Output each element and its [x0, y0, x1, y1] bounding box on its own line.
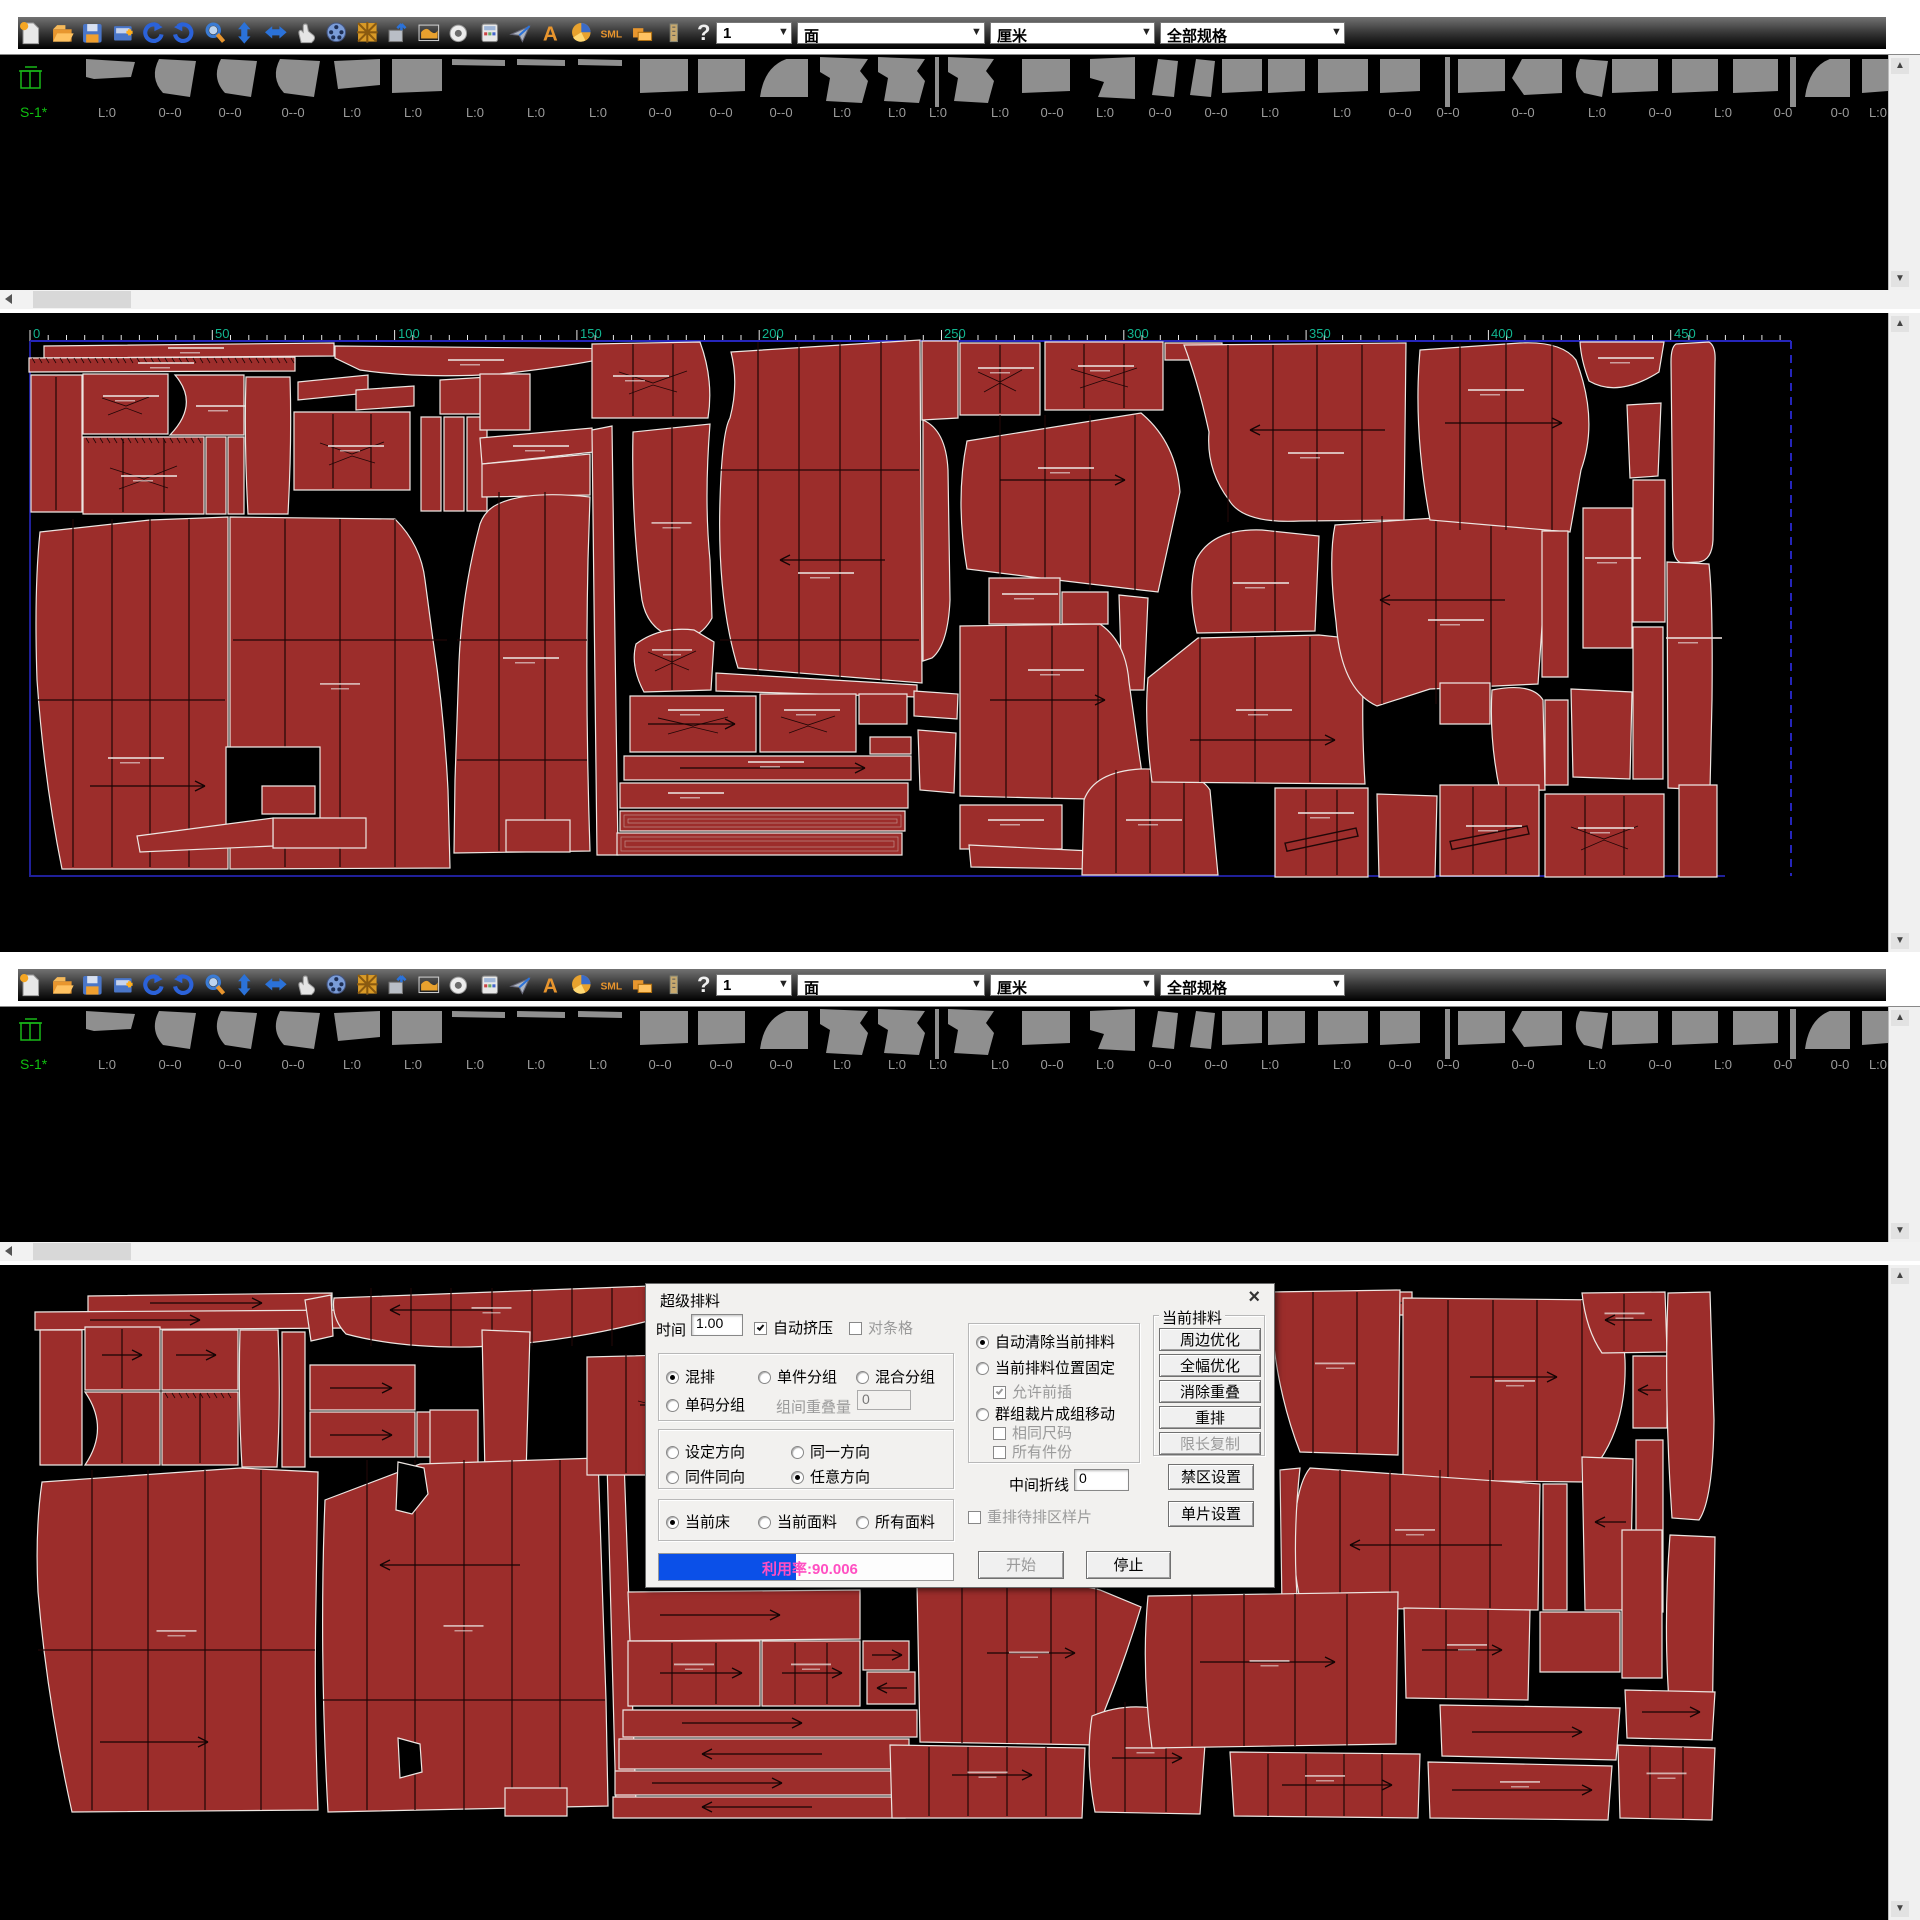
- svg-text:0--0: 0--0: [1148, 1057, 1171, 1072]
- svg-text:L:0: L:0: [1869, 1057, 1887, 1072]
- svg-text:L:0: L:0: [991, 1057, 1009, 1072]
- svg-text:0-0: 0-0: [1831, 1057, 1850, 1072]
- svg-text:L:0: L:0: [589, 1057, 607, 1072]
- svg-text:0--0: 0--0: [1204, 1057, 1227, 1072]
- svg-text:0--0: 0--0: [1511, 1057, 1534, 1072]
- svg-text:L:0: L:0: [527, 1057, 545, 1072]
- svg-text:L:0: L:0: [929, 1057, 947, 1072]
- svg-text:0--0: 0--0: [158, 1057, 181, 1072]
- svg-text:0--0: 0--0: [648, 1057, 671, 1072]
- svg-text:0--0: 0--0: [1040, 1057, 1063, 1072]
- svg-text:L:0: L:0: [1261, 1057, 1279, 1072]
- svg-text:0--0: 0--0: [1648, 1057, 1671, 1072]
- svg-text:L:0: L:0: [343, 1057, 361, 1072]
- svg-text:0--0: 0--0: [709, 1057, 732, 1072]
- svg-text:L:0: L:0: [98, 1057, 116, 1072]
- svg-text:0--0: 0--0: [769, 1057, 792, 1072]
- svg-text:S-1*: S-1*: [20, 1056, 48, 1072]
- svg-text:L:0: L:0: [404, 1057, 422, 1072]
- svg-text:0--0: 0--0: [1388, 1057, 1411, 1072]
- svg-text:L:0: L:0: [1714, 1057, 1732, 1072]
- svg-text:0--0: 0--0: [218, 1057, 241, 1072]
- svg-text:L:0: L:0: [1588, 1057, 1606, 1072]
- svg-text:L:0: L:0: [466, 1057, 484, 1072]
- svg-text:L:0: L:0: [833, 1057, 851, 1072]
- svg-text:0--0: 0--0: [281, 1057, 304, 1072]
- svg-text:L:0: L:0: [888, 1057, 906, 1072]
- svg-text:0--0: 0--0: [1436, 1057, 1459, 1072]
- svg-text:L:0: L:0: [1333, 1057, 1351, 1072]
- svg-text:0-0: 0-0: [1774, 1057, 1793, 1072]
- svg-text:L:0: L:0: [1096, 1057, 1114, 1072]
